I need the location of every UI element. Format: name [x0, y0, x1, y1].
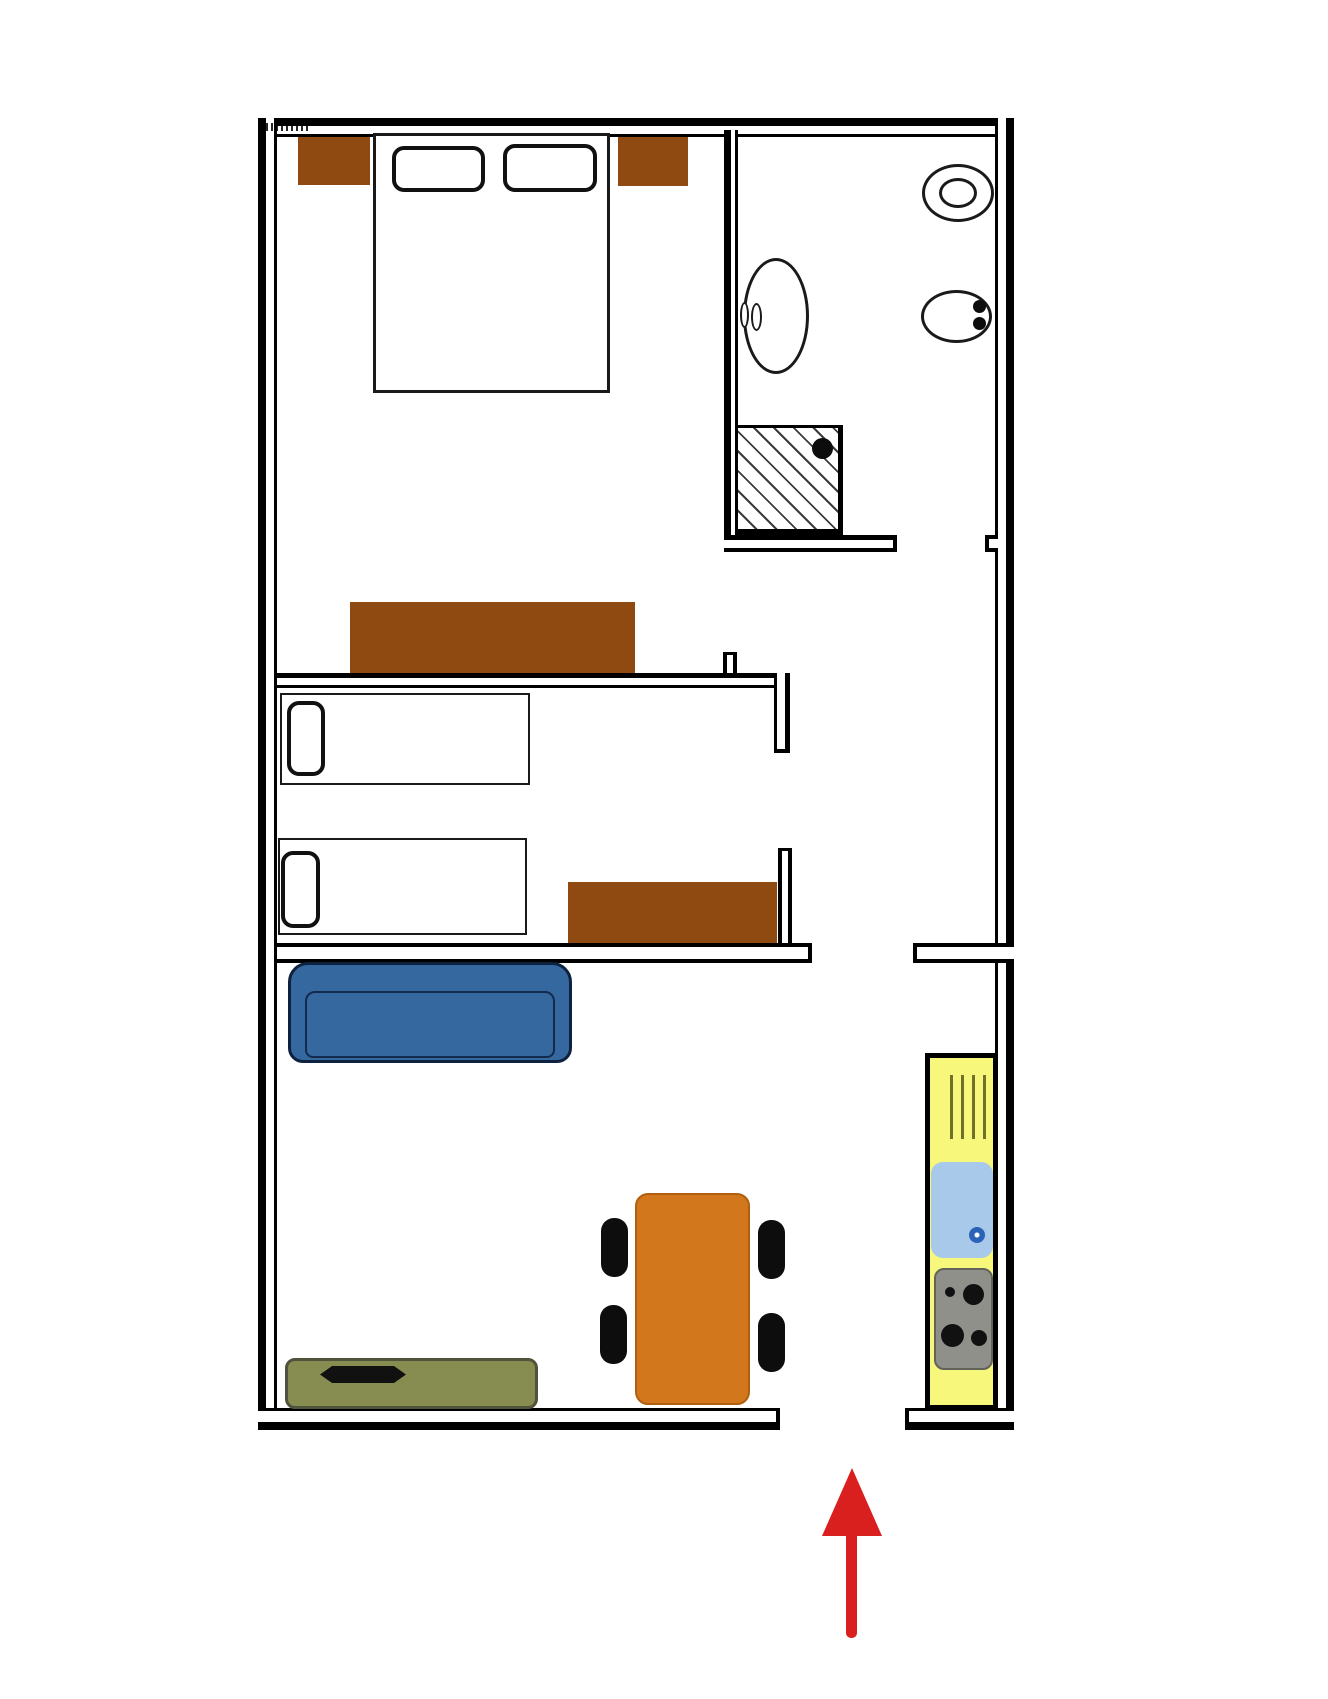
corner-mark: [266, 123, 310, 131]
dish-rack: [950, 1075, 987, 1139]
wall-top: [258, 118, 1014, 137]
tv-bench: [285, 1358, 538, 1409]
tap-handle: [740, 302, 749, 328]
sofa-seat-cushion: [305, 991, 555, 1058]
toilet-flush-button-1: [973, 300, 986, 313]
chair-top-left: [601, 1218, 628, 1277]
wall-bathroom-bottom: [724, 535, 897, 552]
toilet-upper-inner: [939, 178, 977, 208]
shower-head: [812, 438, 833, 459]
sofa: [288, 962, 572, 1063]
kitchen-sink: [931, 1162, 993, 1258]
wall-bottom-right-of-entrance: [905, 1408, 1014, 1430]
burner-large-bottom-left: [941, 1324, 964, 1347]
wall-kitchen-top: [913, 943, 1014, 963]
pillow-left: [392, 146, 485, 192]
floor-plan-canvas: [0, 0, 1328, 1699]
dresser-second-bedroom: [568, 882, 777, 943]
wall-bedroom-divider-return: [774, 673, 790, 753]
burner-small-top-left: [945, 1287, 955, 1297]
wall-left: [258, 118, 277, 1430]
chair-bottom-left: [600, 1305, 627, 1364]
stove: [934, 1268, 993, 1370]
entrance-arrow-head: [822, 1468, 882, 1536]
burner-small-bottom-right: [971, 1330, 987, 1346]
toilet-flush-button-2: [973, 317, 986, 330]
wardrobe-dresser: [350, 602, 635, 673]
wall-living-room-divider: [277, 943, 812, 963]
wall-bathroom-door-jamb: [985, 535, 998, 552]
tap-spout: [751, 303, 762, 331]
single-bed-upper-pillow: [287, 701, 325, 776]
wall-bathroom-partition: [724, 130, 738, 540]
burner-large-top-right: [963, 1284, 984, 1305]
wall-bedroom-divider-tick: [723, 652, 737, 673]
sink-drain: [969, 1227, 985, 1243]
nightstand-right: [618, 137, 688, 186]
wall-bedroom-divider: [277, 673, 776, 688]
nightstand-left: [298, 137, 370, 185]
tv: [320, 1366, 406, 1383]
chair-bottom-right: [758, 1313, 785, 1372]
entrance-arrow-shaft: [846, 1534, 857, 1638]
wall-bottom-left-of-entrance: [258, 1408, 780, 1430]
wall-second-bedroom-door-jamb: [778, 848, 792, 945]
single-bed-lower-pillow: [281, 851, 320, 928]
dining-table: [635, 1193, 750, 1405]
chair-top-right: [758, 1220, 785, 1279]
pillow-right: [503, 144, 597, 192]
